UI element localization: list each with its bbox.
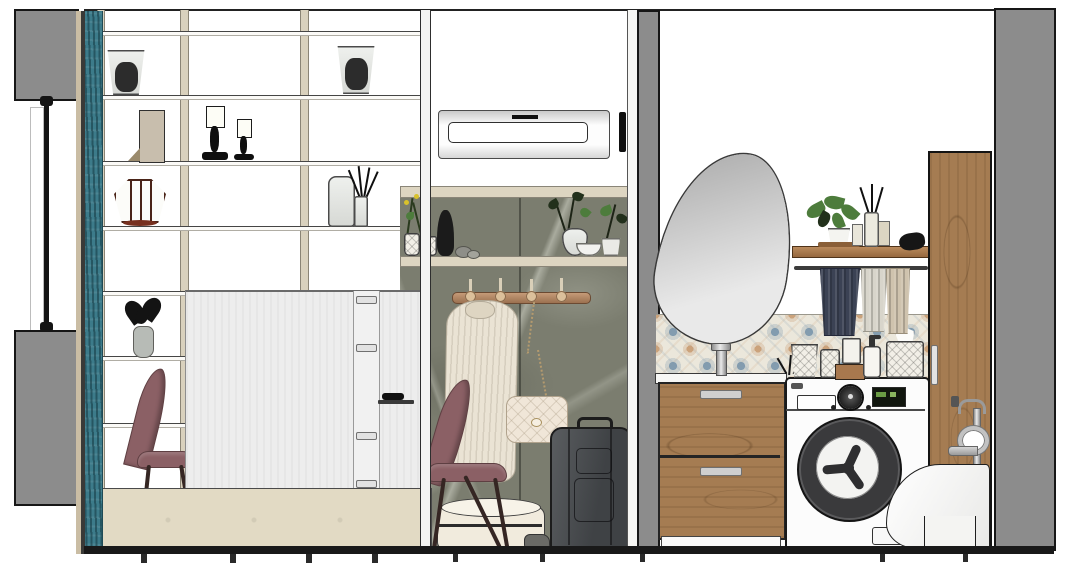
diffuser-bottle <box>864 212 879 247</box>
side-display-shelf <box>378 400 414 404</box>
shelving-mid-post-2 <box>300 10 309 293</box>
yellow-flower <box>414 194 419 199</box>
soap-dispenser-body <box>863 346 881 378</box>
washer-door-glass <box>816 436 879 499</box>
suitcase-seam <box>568 429 570 545</box>
floor-mark <box>453 554 458 562</box>
planter-dark-plant <box>345 58 368 90</box>
candlestick-small-base <box>234 154 254 160</box>
glass-jar <box>328 176 355 227</box>
towel-navy <box>820 268 860 336</box>
reed-stick <box>859 187 869 214</box>
door-stop-tab <box>619 112 626 152</box>
shelf-line <box>97 95 423 100</box>
cabinet-handle <box>931 345 938 385</box>
perfume-bottle <box>852 224 863 246</box>
woven-basket-vase <box>404 233 420 256</box>
toilet-base <box>924 516 976 547</box>
washer-display-segment <box>890 392 896 397</box>
wood-vanity-drawers <box>658 382 786 540</box>
vent-inner-frame <box>448 122 588 143</box>
white-pot <box>601 238 621 256</box>
washer-display-segment <box>876 392 886 397</box>
bench-foot <box>141 554 147 563</box>
gray-vase <box>133 326 154 358</box>
floor-mark <box>963 554 968 562</box>
yellow-flower <box>404 200 409 205</box>
washer-button <box>866 405 871 410</box>
display-shelf-bottom <box>400 256 639 267</box>
drum-hub <box>842 462 854 474</box>
canister <box>842 338 861 364</box>
cabinet-drawer-strip <box>353 291 380 488</box>
washer-logo <box>791 383 803 389</box>
sideboard-bench <box>84 488 432 550</box>
coat-rack-peg <box>526 291 537 302</box>
tissue-basket <box>886 341 924 378</box>
display-shelf-top <box>400 186 639 198</box>
marble-seam <box>519 197 521 546</box>
lantern-bar <box>130 180 132 222</box>
soap-dispenser-spout <box>869 335 881 339</box>
perfume-bottle <box>878 221 890 246</box>
lantern-base <box>123 220 157 226</box>
book-stand <box>139 110 165 163</box>
sunglasses <box>382 393 404 400</box>
suitcase-pocket <box>576 448 612 474</box>
basin-faucet-spout <box>711 343 731 351</box>
drawer-handle <box>356 344 377 352</box>
leaf <box>406 212 414 220</box>
reed-stick <box>874 187 883 214</box>
white-cabinet-panel <box>185 290 425 492</box>
black-flower-bloom <box>135 307 150 325</box>
candlestick-small-stem <box>240 136 247 154</box>
pole-knob-top <box>40 96 53 106</box>
candlestick-large-base <box>202 152 228 160</box>
black-bottle-vase <box>437 210 454 256</box>
soap-dispenser-pump <box>869 338 875 347</box>
drawer-handle <box>356 296 377 304</box>
shelf-line <box>97 31 423 36</box>
candlestick-large-stem <box>210 126 219 152</box>
storage-basket <box>791 344 818 378</box>
bench-foot <box>230 554 236 563</box>
bench-foot <box>306 554 312 563</box>
basin-faucet-stem <box>716 347 727 376</box>
wall-section-bottom <box>14 330 79 506</box>
diffuser-bottle <box>354 196 368 227</box>
window-pole <box>44 97 49 334</box>
vanity-drawer-handle <box>700 467 742 476</box>
floor-line <box>84 546 1054 554</box>
interior-elevation-drawing <box>0 0 1066 572</box>
floor-mark <box>880 554 885 562</box>
bidet-faucet-hook <box>958 399 986 414</box>
shelf-line <box>97 226 423 231</box>
vanity-drawer-handle <box>700 390 742 399</box>
curtain-panel <box>76 11 103 554</box>
wall-section-top <box>14 9 79 101</box>
hand-spray-head <box>951 396 959 407</box>
towel-gray <box>861 268 887 332</box>
reed-stick <box>871 184 873 214</box>
floor-mark <box>540 554 545 562</box>
washer-knob-dot <box>848 394 853 399</box>
wood-box <box>835 364 865 380</box>
suitcase-pocket <box>574 478 614 522</box>
divider-post <box>420 10 431 547</box>
coat-collar <box>465 301 495 319</box>
bag-clasp <box>531 418 542 427</box>
washer-display <box>872 387 906 407</box>
lantern-bar <box>140 179 142 223</box>
ceiling-line <box>84 9 1052 11</box>
drawer-handle <box>356 432 377 440</box>
bidet-spout <box>948 446 978 456</box>
candlestick-large-candle <box>206 106 225 128</box>
floor-mark <box>640 554 645 562</box>
pebble-stone <box>467 250 480 259</box>
planter-dark-plant <box>115 62 138 92</box>
drawer-handle <box>356 480 377 488</box>
book-page <box>128 148 140 161</box>
storage-hat-box-lid <box>441 498 541 517</box>
towel-tan <box>886 268 910 334</box>
vanity-drawer-divider <box>660 455 780 458</box>
bench-foot <box>372 554 378 563</box>
vent-top-bar <box>512 115 538 119</box>
washer-button <box>831 405 836 410</box>
lantern-bar <box>150 180 152 222</box>
coat-rack-peg <box>556 291 567 302</box>
wall-cut-column-right <box>994 8 1056 551</box>
